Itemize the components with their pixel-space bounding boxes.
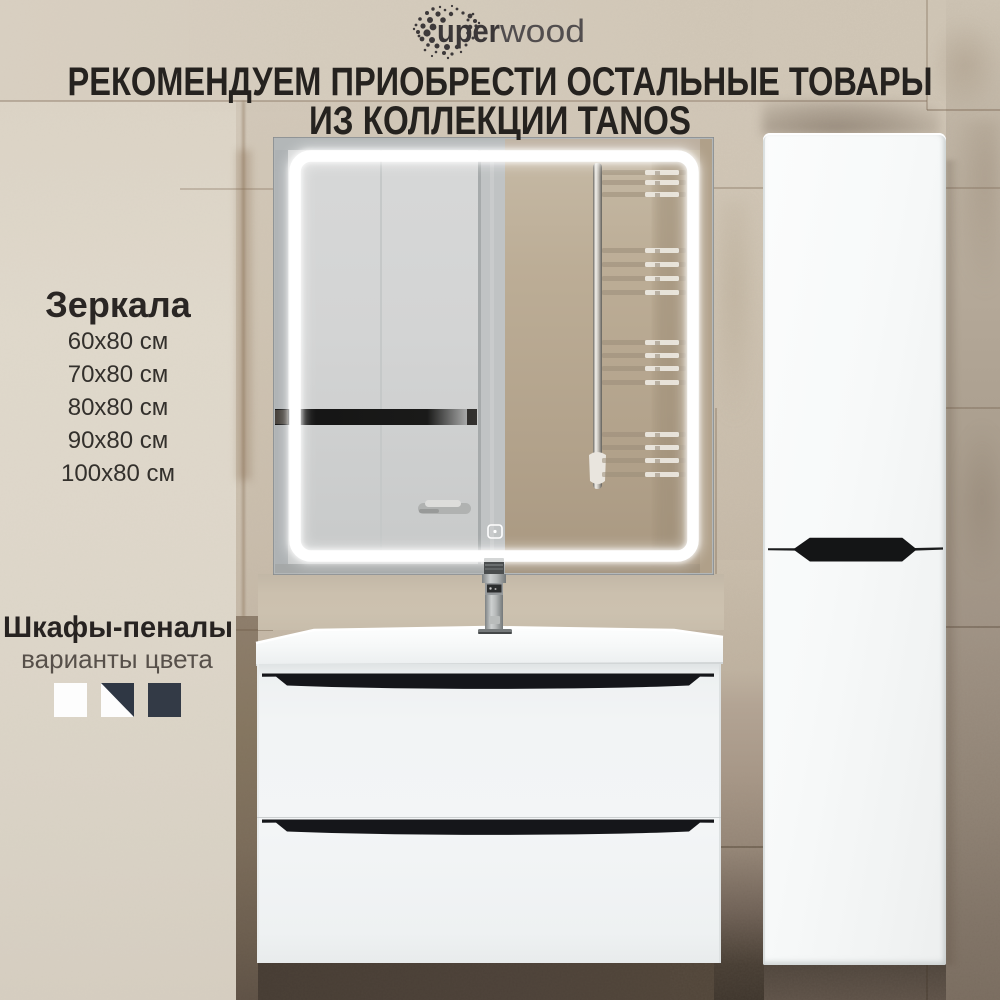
svg-text:ИЗ КОЛЛЕКЦИИ TANOS: ИЗ КОЛЛЕКЦИИ TANOS [309,99,691,140]
svg-text:Шкафы-пеналы: Шкафы-пеналы [3,611,233,644]
svg-text:РЕКОМЕНДУЕМ ПРИОБРЕСТИ ОСТАЛЬН: РЕКОМЕНДУЕМ ПРИОБРЕСТИ ОСТАЛЬНЫЕ ТОВАРЫ [68,60,933,104]
